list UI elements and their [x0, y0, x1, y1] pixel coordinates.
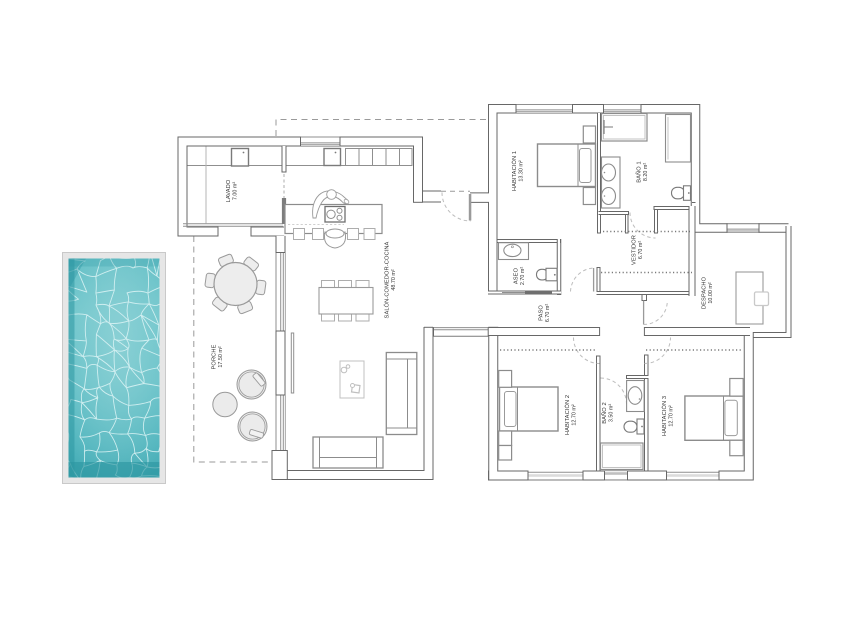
svg-text:8.20 m²: 8.20 m²: [643, 163, 649, 181]
svg-text:48.70 m²: 48.70 m²: [391, 269, 397, 290]
svg-text:17.50 m²: 17.50 m²: [218, 346, 224, 367]
svg-text:SALÓN-COMEDOR-COCINA: SALÓN-COMEDOR-COCINA: [384, 241, 391, 318]
svg-text:DESPACHO: DESPACHO: [702, 276, 708, 309]
svg-text:12.70 m²: 12.70 m²: [669, 405, 675, 426]
svg-text:LAVADO: LAVADO: [226, 179, 232, 202]
svg-text:13.30 m²: 13.30 m²: [519, 160, 525, 181]
svg-text:HABITACIÓN 2: HABITACIÓN 2: [564, 395, 571, 435]
svg-text:12.70 m²: 12.70 m²: [572, 404, 578, 425]
svg-text:BAÑO 2: BAÑO 2: [601, 402, 608, 423]
svg-text:BAÑO 1: BAÑO 1: [636, 161, 643, 182]
svg-text:6.70 m²: 6.70 m²: [545, 304, 551, 322]
svg-text:10.00 m²: 10.00 m²: [708, 282, 714, 303]
svg-text:PORCHE: PORCHE: [212, 344, 218, 369]
svg-text:6.70 m²: 6.70 m²: [638, 241, 644, 259]
svg-text:HABITACIÓN 3: HABITACIÓN 3: [661, 396, 668, 436]
svg-text:3.50 m²: 3.50 m²: [609, 404, 615, 422]
svg-text:PASO: PASO: [539, 305, 545, 321]
svg-text:ASEO: ASEO: [514, 267, 520, 284]
svg-text:VESTIDOR: VESTIDOR: [632, 235, 638, 265]
svg-text:HABITACIÓN 1: HABITACIÓN 1: [511, 151, 518, 191]
svg-text:2.70 m²: 2.70 m²: [520, 267, 526, 285]
svg-text:7.00 m²: 7.00 m²: [233, 182, 239, 200]
